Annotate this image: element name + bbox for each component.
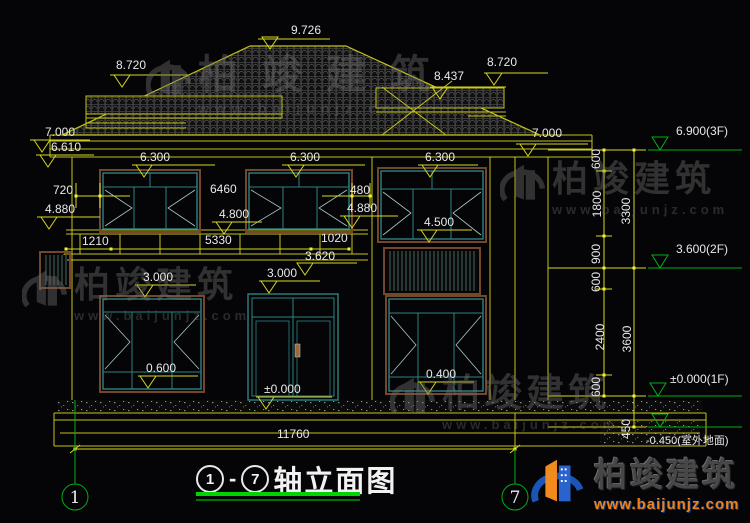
dim-balcony-mid: 5330 (205, 234, 232, 247)
louver-tower-slats (387, 251, 477, 291)
dim-w2-mid: 6460 (210, 183, 237, 196)
mark-tower-window-sill: 4.500 (424, 216, 454, 229)
seg-600c: 600 (589, 365, 603, 409)
mark-eave-left-lower: 6.610 (51, 141, 81, 154)
axis-number-right: 7 (502, 488, 528, 508)
level-tri-3f (652, 137, 668, 150)
mark-dormer-left: 8.720 (116, 59, 146, 72)
mark-window1-left-sill: 0.600 (146, 362, 176, 375)
mark-floor2-head-right: 6.300 (425, 151, 455, 164)
elevation-drawing (0, 0, 750, 523)
seg-total-lower: 3600 (620, 317, 634, 361)
title-separator: - (229, 466, 236, 492)
brand-logo: 柏竣建筑 www.baijunjz.com (526, 448, 739, 513)
mark-floor2-head-left: 6.300 (140, 151, 170, 164)
right-dormer-roof (376, 88, 504, 108)
left-dormer-roof (86, 96, 282, 114)
seg-600b: 600 (589, 260, 603, 304)
dim-balcony-left: 1210 (82, 235, 109, 248)
seg-2400: 2400 (593, 315, 607, 359)
level-tri-1f (650, 383, 666, 396)
mark-floor2-sill-left: 4.880 (45, 203, 75, 216)
brand-logo-icon (526, 450, 586, 512)
dim-total-width: 11760 (277, 428, 309, 441)
dim-balcony-right: 1020 (321, 232, 348, 245)
mark-floor2-sill-right: 4.880 (347, 202, 377, 215)
title-underline-thin (196, 499, 360, 501)
axis-number-left: 1 (62, 488, 88, 508)
mark-dormer-right-high: 8.720 (487, 56, 517, 69)
level-label-2f: 3.600(2F) (676, 243, 728, 256)
seg-total-upper: 3300 (619, 189, 633, 233)
brand-name: 柏竣建筑 (594, 448, 739, 496)
cad-canvas: 柏竣建筑 www.baijunjz.com 柏竣建筑 www.baijunjz.… (0, 0, 750, 523)
louver-left-slats (43, 255, 67, 285)
level-label-3f: 6.900(3F) (676, 125, 728, 138)
mark-floor2-head-mid: 6.300 (290, 151, 320, 164)
seg-600a: 600 (589, 137, 603, 181)
mark-ridge: 9.726 (291, 24, 321, 37)
title-underline (196, 492, 360, 496)
seg-1800: 1800 (590, 182, 604, 226)
mark-window1-right-sill: 0.400 (426, 368, 456, 381)
mark-eave-right: 7.000 (532, 127, 562, 140)
eave-band (50, 135, 592, 157)
mark-dormer-right-low: 8.437 (434, 70, 464, 83)
mark-entry-door-level: ±0.000 (264, 383, 301, 396)
dim-w2-right: 480 (350, 184, 370, 197)
level-tri-2f (652, 255, 668, 268)
mark-floor1-head-right: 3.000 (267, 267, 297, 280)
window-1f-left (100, 296, 204, 392)
dim-w2-left: 720 (53, 184, 73, 197)
seg-450: 450 (619, 407, 633, 451)
ground (54, 400, 706, 446)
title-axis-end: 7 (241, 465, 269, 493)
mark-floor1-head-left: 3.000 (143, 271, 173, 284)
level-label-ground: -0.450(室外地面) (646, 435, 729, 448)
brand-site: www.baijunjz.com (594, 496, 739, 513)
title-axis-start: 1 (196, 465, 224, 493)
mark-floor2-sill-mid: 4.800 (219, 208, 249, 221)
door-handle (295, 344, 300, 357)
mark-eave-left-upper: 7.000 (45, 126, 75, 139)
mark-balcony-level: 3.620 (305, 250, 335, 263)
level-label-1f: ±0.000(1F) (670, 373, 729, 386)
